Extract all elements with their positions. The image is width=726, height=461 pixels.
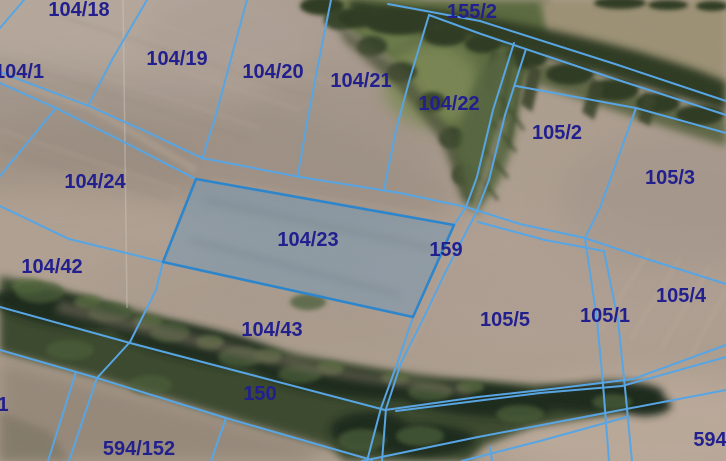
svg-text:104/23: 104/23 <box>277 229 338 251</box>
svg-text:104/24: 104/24 <box>64 171 126 193</box>
svg-text:105/3: 105/3 <box>645 167 695 189</box>
svg-text:105/5: 105/5 <box>480 309 530 331</box>
svg-text:104/18: 104/18 <box>48 0 109 21</box>
svg-text:150: 150 <box>243 383 276 405</box>
svg-text:105/4: 105/4 <box>656 285 707 307</box>
svg-text:105/2: 105/2 <box>532 122 582 144</box>
svg-text:104/42: 104/42 <box>21 256 82 278</box>
svg-text:105/1: 105/1 <box>580 305 630 327</box>
svg-text:104/21: 104/21 <box>330 70 391 92</box>
svg-text:594/152: 594/152 <box>103 438 175 460</box>
svg-text:104/43: 104/43 <box>241 319 302 341</box>
svg-text:594: 594 <box>693 429 726 451</box>
svg-text:1: 1 <box>0 394 9 416</box>
svg-text:104/22: 104/22 <box>418 93 479 115</box>
svg-text:104/1: 104/1 <box>0 61 44 83</box>
svg-text:104/19: 104/19 <box>146 48 207 70</box>
svg-text:155/2: 155/2 <box>447 1 497 23</box>
svg-text:104/20: 104/20 <box>242 61 303 83</box>
svg-text:159: 159 <box>429 239 462 261</box>
